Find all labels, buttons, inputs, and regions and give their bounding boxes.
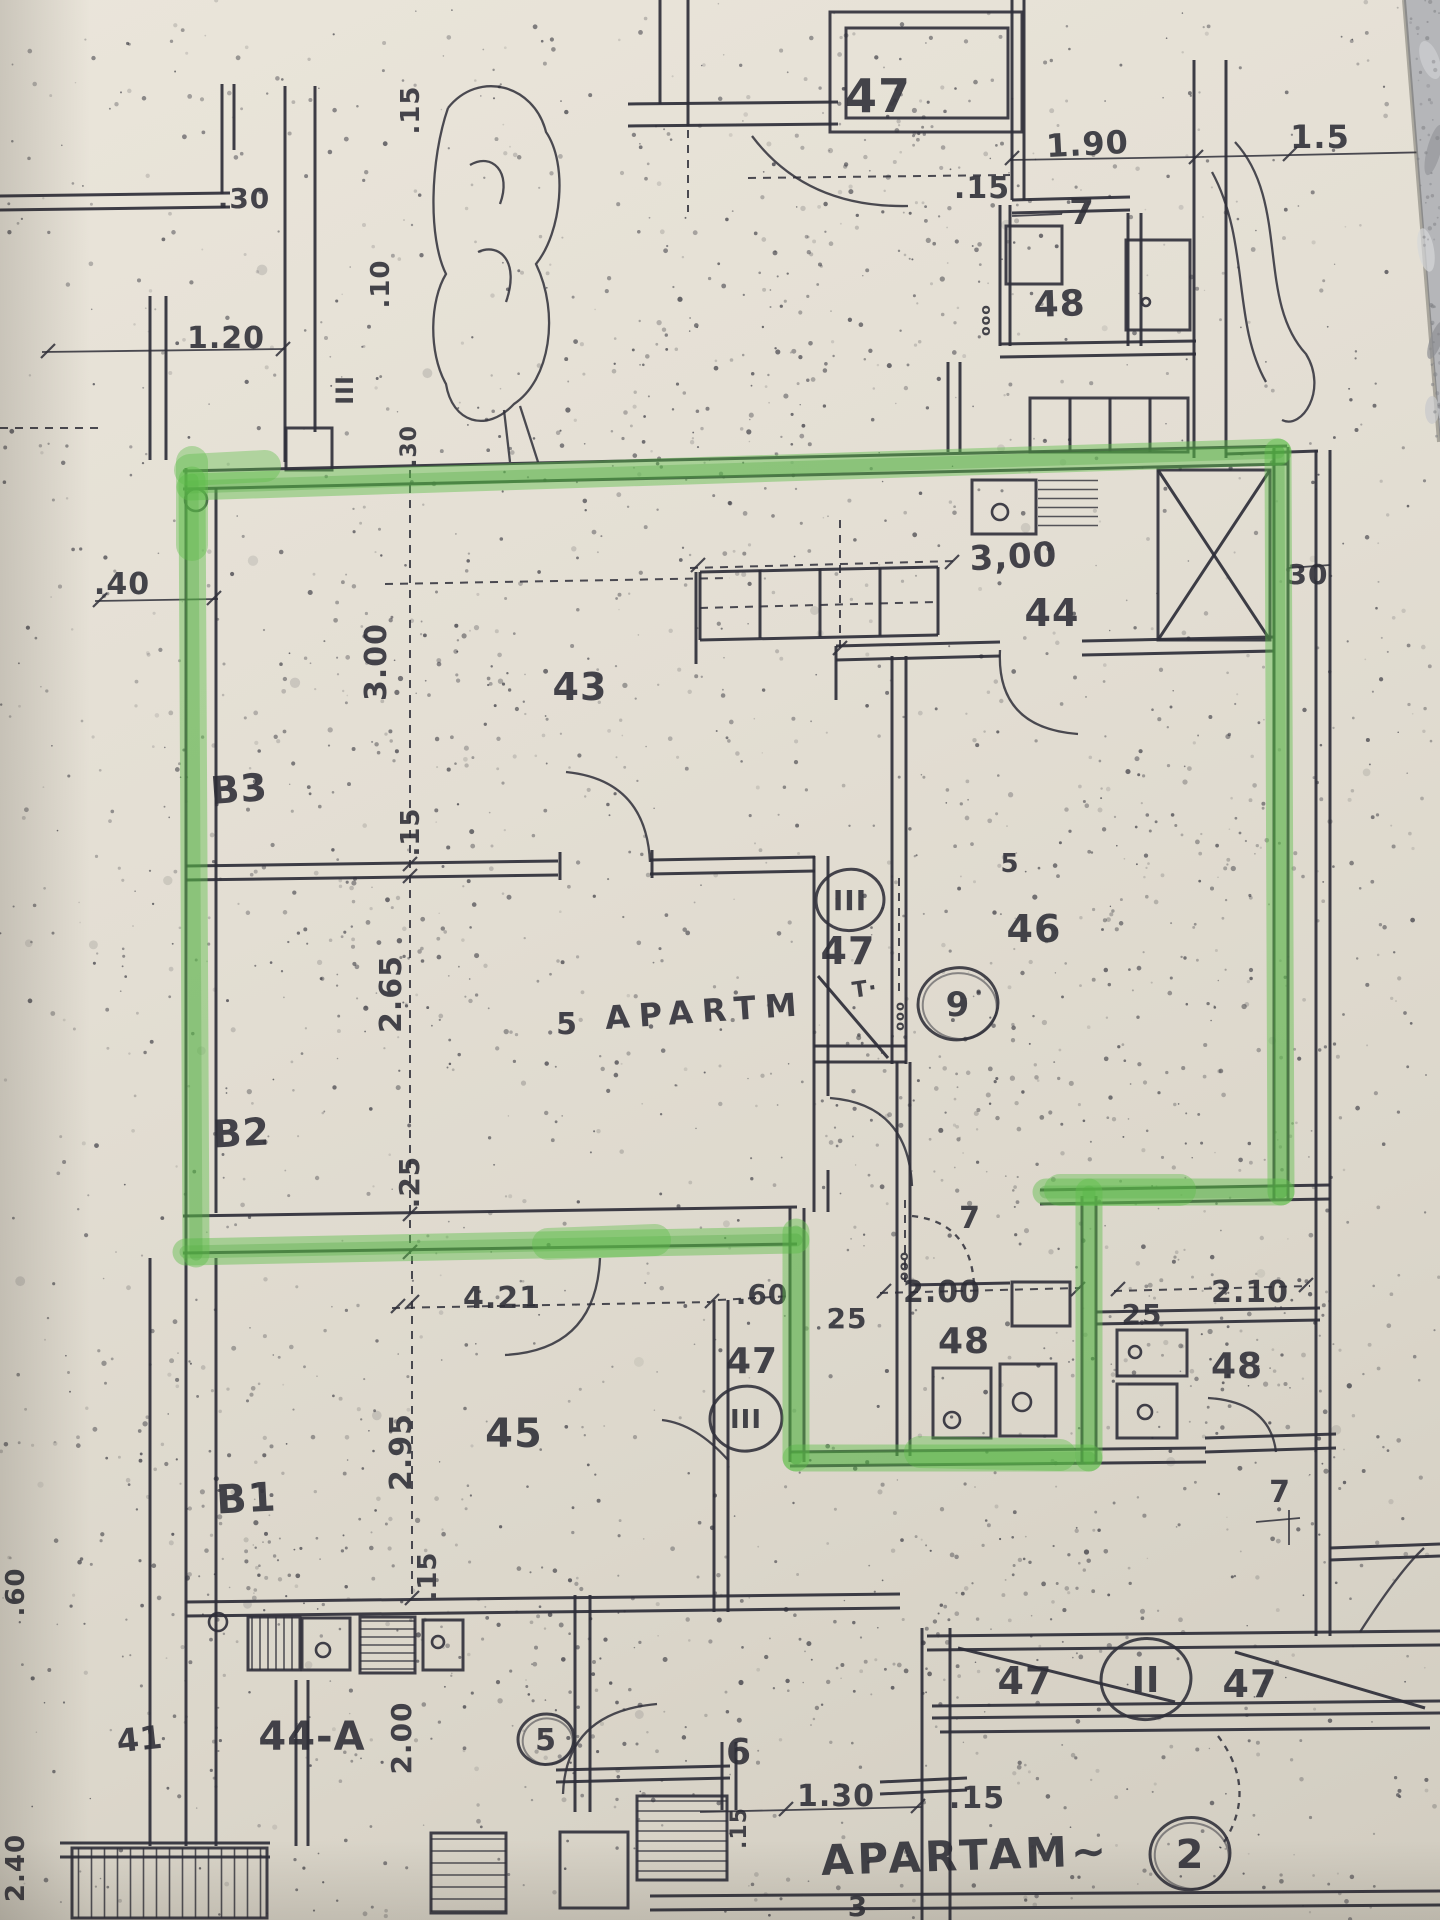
plan-label: 1.5 <box>1290 118 1350 156</box>
plan-label: 44-A <box>258 1714 365 1760</box>
plan-label: 2.00 <box>903 1275 981 1310</box>
plan-label: 6 <box>726 1732 752 1773</box>
plan-label: 43 <box>553 665 608 709</box>
plan-label: 7 <box>1269 1475 1291 1510</box>
marble-countertop-background <box>1404 0 1440 442</box>
plan-label: 44 <box>1025 591 1080 635</box>
plan-label: 7 <box>959 1201 981 1236</box>
plan-label: 47 <box>845 69 911 123</box>
plan-label: 47 <box>821 929 876 973</box>
plan-label: 5 <box>535 1723 557 1758</box>
plan-label: III <box>730 1405 762 1435</box>
plan-label: 5 <box>556 1007 578 1042</box>
floor-plan-photo: 47.151.901.5748ooo.30.15.10III1.20.30.40… <box>0 0 1440 1920</box>
plan-label: 1.90 <box>1045 123 1130 165</box>
plan-label: 2.65 <box>374 955 409 1033</box>
plan-label: 2.00 <box>385 1701 418 1774</box>
plan-label: 47 <box>998 1659 1053 1703</box>
plan-label: .10 <box>366 259 396 308</box>
plan-label: 1.20 <box>187 321 265 356</box>
plan-label: 48 <box>1211 1346 1263 1387</box>
plan-label: ooo <box>978 304 994 336</box>
plan-label: III <box>331 375 359 405</box>
plan-label: .15 <box>413 1551 443 1600</box>
plan-label: .15 <box>954 171 1010 206</box>
plan-label: 1.30 <box>797 1779 875 1814</box>
floor-plan-drawing: 47.151.901.5748ooo.30.15.10III1.20.30.40… <box>0 0 1440 1920</box>
plan-label: APARTM <box>604 985 807 1037</box>
plan-label: III <box>833 884 867 917</box>
plan-label: B1 <box>215 1474 278 1523</box>
bottom-shadow <box>0 1840 1440 1920</box>
plan-label: T· <box>851 975 880 1003</box>
plan-label: 5 <box>1000 849 1019 879</box>
plan-label: .15 <box>396 85 426 134</box>
plan-label: 3.00 <box>359 623 394 701</box>
plan-label: 7 <box>1069 192 1095 233</box>
left-shadow <box>0 0 90 1920</box>
plan-label: 9 <box>946 985 971 1025</box>
plan-label: .30 <box>397 425 422 467</box>
plan-label: .15 <box>949 1781 1005 1816</box>
plan-label: .30 <box>218 182 271 215</box>
plan-label: 2.95 <box>384 1413 419 1491</box>
plan-label: 48 <box>1033 283 1087 326</box>
plan-label: 3,00 <box>968 535 1058 580</box>
plan-label: 25 <box>827 1302 868 1335</box>
plan-label: .40 <box>94 567 150 602</box>
plan-label: .15 <box>396 807 426 856</box>
plan-label: ooo <box>893 1001 908 1031</box>
plan-label: 2.10 <box>1211 1275 1289 1310</box>
plan-label: II <box>1132 1660 1161 1701</box>
plan-label: B3 <box>209 765 269 813</box>
plan-label: 41 <box>115 1718 165 1761</box>
plan-label: 30 <box>1288 558 1329 591</box>
plan-label: .25 <box>393 1156 426 1209</box>
plan-label: 46 <box>1007 907 1062 951</box>
plan-label: 25 <box>1122 1298 1163 1331</box>
plan-label: 47 <box>726 1341 778 1382</box>
plan-label: .60 <box>736 1278 789 1311</box>
plan-label: B2 <box>212 1110 272 1157</box>
plan-label: 45 <box>485 1411 543 1457</box>
plan-label: 47 <box>1223 1662 1278 1706</box>
plan-label: 4.21 <box>463 1281 541 1316</box>
green-highlighter-outline <box>186 452 1281 1458</box>
plan-label: 48 <box>938 1321 990 1362</box>
